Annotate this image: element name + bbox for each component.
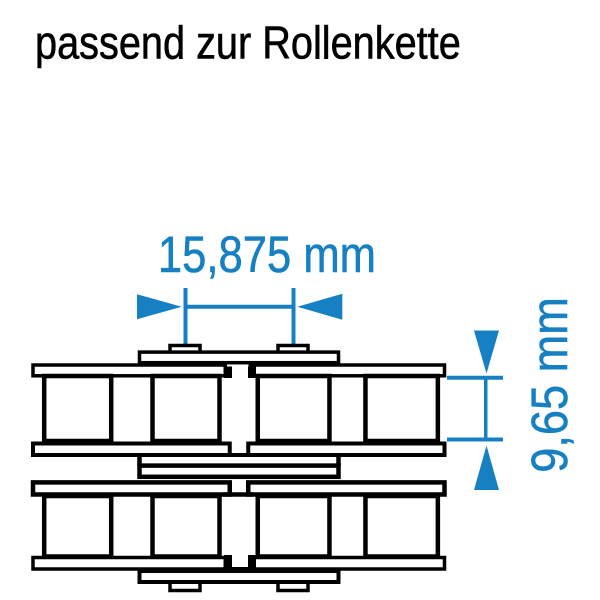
svg-text:9,65 mm: 9,65 mm [521, 297, 578, 473]
svg-text:passend zur Rollenkette: passend zur Rollenkette [35, 18, 461, 69]
svg-text:15,875 mm: 15,875 mm [158, 227, 376, 284]
